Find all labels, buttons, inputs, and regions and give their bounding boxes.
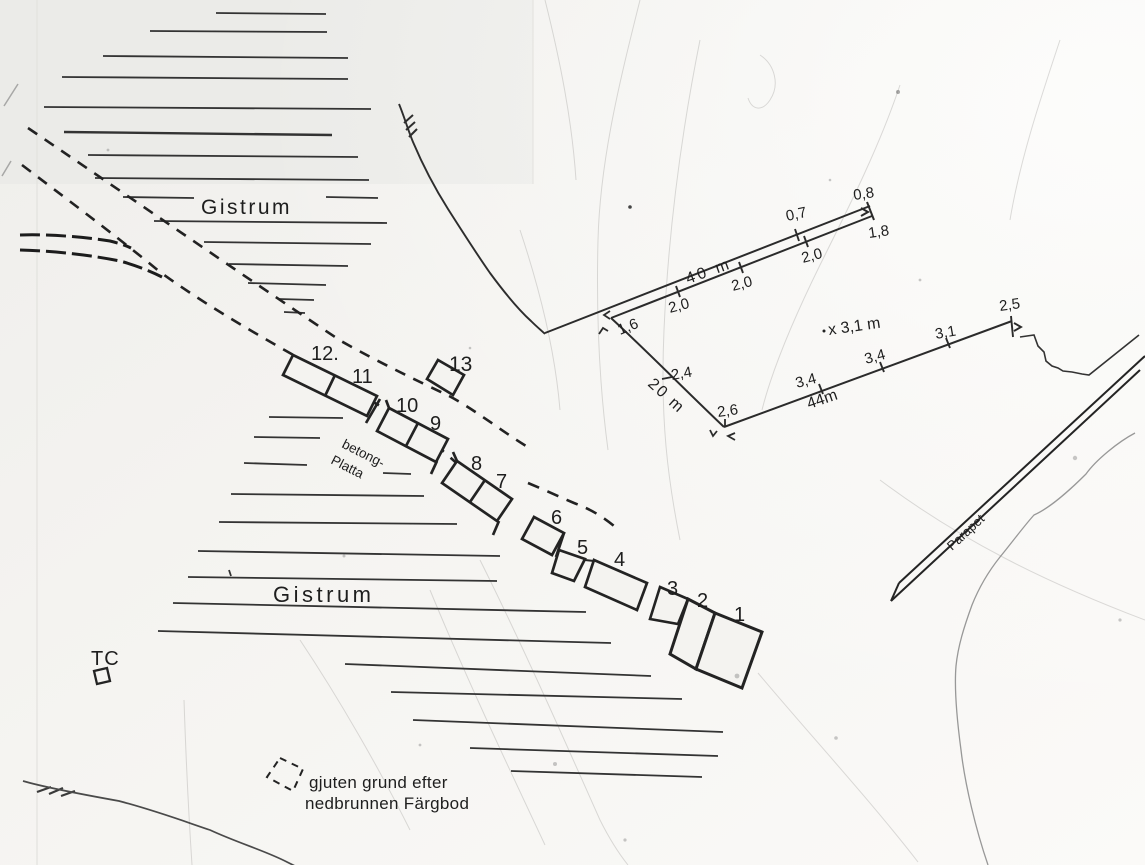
svg-text:13: 13 <box>449 353 472 376</box>
svg-text:5: 5 <box>577 537 588 559</box>
svg-text:3: 3 <box>667 578 678 600</box>
svg-text:1,8: 1,8 <box>867 222 890 242</box>
svg-text:2,4: 2,4 <box>670 364 693 384</box>
svg-text:2,5: 2,5 <box>998 295 1021 315</box>
svg-text:Gistrum: Gistrum <box>201 196 292 219</box>
svg-text:2: 2 <box>697 590 708 612</box>
svg-text:1: 1 <box>734 604 745 626</box>
svg-text:7: 7 <box>496 471 507 493</box>
svg-text:2,6: 2,6 <box>716 401 739 421</box>
svg-text:11: 11 <box>352 366 373 388</box>
svg-text:Gistrum: Gistrum <box>273 582 375 607</box>
svg-text:8: 8 <box>471 453 482 475</box>
svg-text:0,8: 0,8 <box>852 184 875 204</box>
svg-text:3,1: 3,1 <box>934 323 957 343</box>
svg-text:9: 9 <box>430 413 441 435</box>
svg-text:4: 4 <box>614 549 625 571</box>
svg-text:12.: 12. <box>311 343 339 365</box>
svg-text:nedbrunnen Färgbod: nedbrunnen Färgbod <box>305 794 469 813</box>
svg-text:gjuten grund efter: gjuten grund efter <box>309 773 448 792</box>
svg-text:6: 6 <box>551 507 562 529</box>
svg-text:10: 10 <box>396 395 418 417</box>
svg-text:TC: TC <box>91 648 120 670</box>
